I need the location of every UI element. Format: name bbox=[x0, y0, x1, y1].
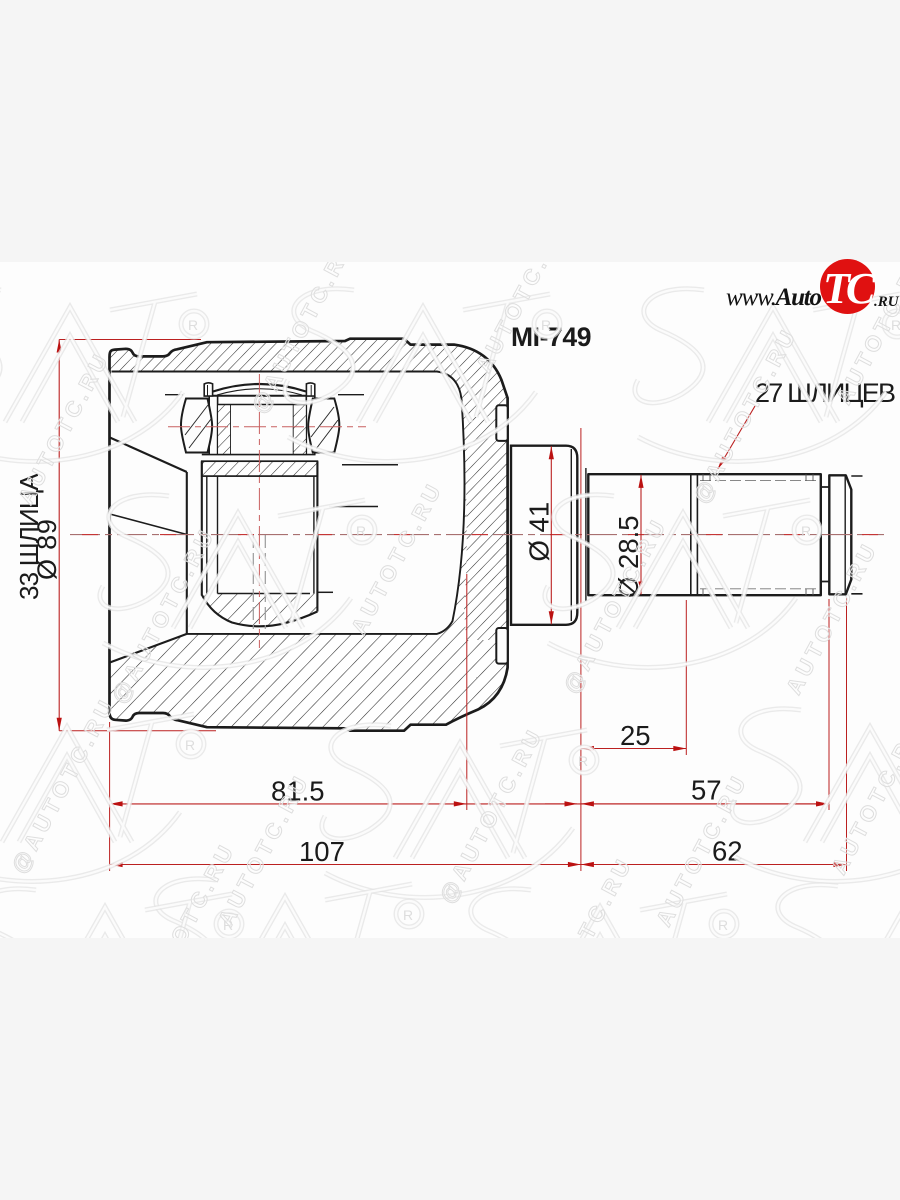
svg-text:Ø 41: Ø 41 bbox=[524, 502, 555, 562]
svg-text:25: 25 bbox=[620, 720, 651, 751]
svg-text:www.Auto: www.Auto bbox=[726, 284, 822, 311]
svg-text:TC: TC bbox=[823, 264, 876, 313]
svg-text:Ø 89: Ø 89 bbox=[32, 518, 62, 580]
svg-text:.RU: .RU bbox=[874, 294, 900, 310]
